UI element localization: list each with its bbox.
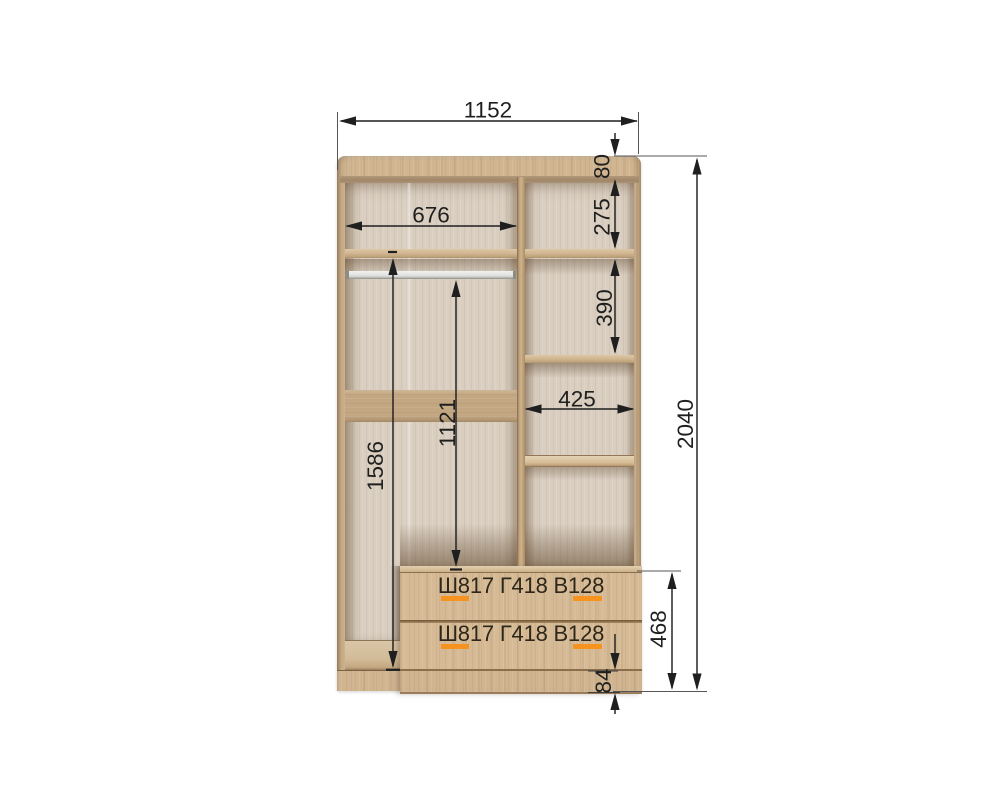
svg-text:390: 390 (592, 289, 617, 327)
svg-text:1121: 1121 (435, 399, 460, 447)
svg-text:468: 468 (646, 610, 671, 648)
svg-text:80: 80 (589, 154, 614, 179)
svg-text:2040: 2040 (673, 399, 698, 449)
svg-text:1152: 1152 (464, 98, 512, 123)
svg-text:676: 676 (412, 203, 450, 228)
svg-text:84: 84 (591, 668, 616, 693)
svg-text:1586: 1586 (363, 441, 388, 491)
svg-text:425: 425 (558, 387, 596, 412)
svg-text:275: 275 (589, 198, 614, 236)
